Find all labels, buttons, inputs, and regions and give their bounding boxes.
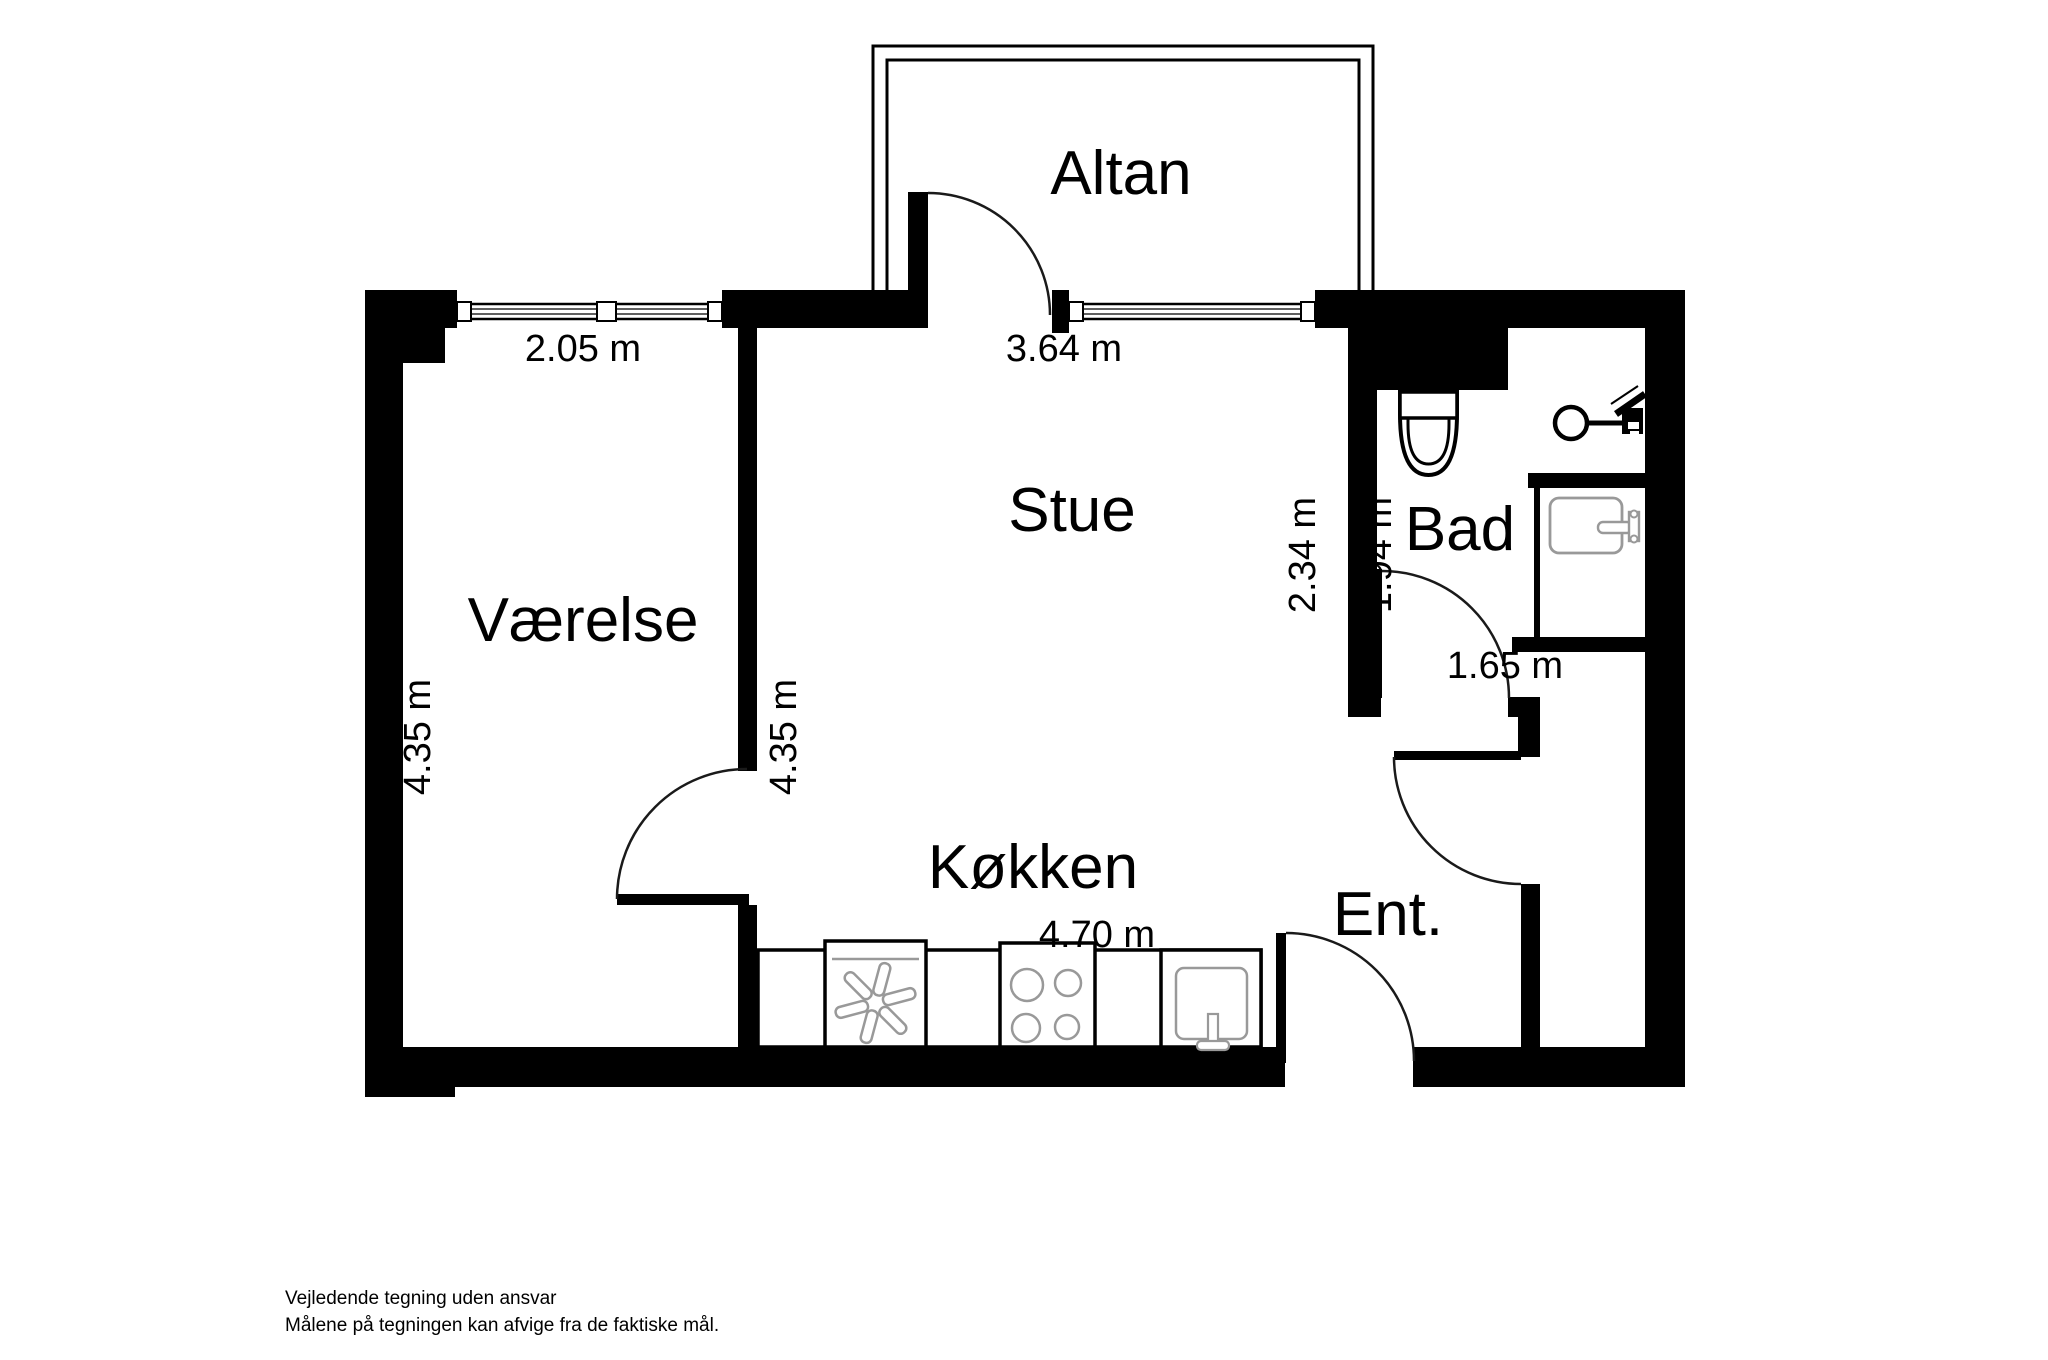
window-vaerelse-cap-left xyxy=(457,302,471,321)
wall-bad-bottom-stub-left xyxy=(1348,697,1381,717)
room-label-altan: Altan xyxy=(1050,139,1191,208)
measurement-stue-right-depth: 2.34 m xyxy=(1282,497,1324,613)
window-vaerelse xyxy=(457,290,722,328)
measurement-vaerelse-width: 2.05 m xyxy=(525,328,641,370)
window-vaerelse-mullion xyxy=(597,302,616,321)
toilet-icon xyxy=(1400,392,1457,475)
door-vaerelse-leaf xyxy=(617,894,749,905)
door-entrance-arc xyxy=(1286,933,1414,1061)
kitchen-sink-faucet-base xyxy=(1197,1041,1229,1050)
door-entrance-leaf xyxy=(1276,933,1286,1063)
floorplan-page: Altan Værelse Stue Køkken Bad Ent. 2.05 … xyxy=(0,0,2048,1360)
room-label-koekken: Køkken xyxy=(928,833,1138,902)
floorplan-drawing: Altan Værelse Stue Køkken Bad Ent. 2.05 … xyxy=(0,0,2048,1360)
washbasin-icon xyxy=(1550,498,1639,553)
room-label-stue: Stue xyxy=(1008,476,1136,545)
corner-pillar-top-left xyxy=(365,290,445,363)
washbasin-faucet-knob xyxy=(1631,511,1638,518)
wall-top-mid-segment xyxy=(722,290,908,328)
wall-bottom-left-segment xyxy=(365,1047,1285,1087)
disclaimer-line-1: Vejledende tegning uden ansvar xyxy=(285,1288,557,1309)
wall-ent-closet xyxy=(1521,884,1540,1060)
corner-pillar-bottom-left xyxy=(365,1047,455,1097)
wall-shower-sink-divider xyxy=(1528,473,1645,488)
measurement-bad-width: 1.65 m xyxy=(1447,645,1563,687)
wall-right xyxy=(1645,290,1685,1087)
wall-vaerelse-divider-upper xyxy=(738,328,757,771)
disclaimer-line-2: Målene på tegningen kan afvige fra de fa… xyxy=(285,1315,719,1336)
kitchen-sink-icon xyxy=(1161,950,1261,1050)
measurement-bad-depth: 1.94 m xyxy=(1358,497,1400,613)
window-vaerelse-cap-right xyxy=(708,302,722,321)
shower-icon xyxy=(1555,386,1645,439)
window-stue-cap-left xyxy=(1069,302,1083,321)
door-balcony xyxy=(908,192,1050,328)
shower-mixer-notch-2 xyxy=(1630,431,1639,436)
room-label-vaerelse: Værelse xyxy=(468,586,699,655)
door-balcony-arc xyxy=(928,193,1050,315)
wall-bad-bottom-stub-right xyxy=(1508,697,1540,717)
measurement-vaerelse-depth: 4.35 m xyxy=(397,679,439,795)
window-stue xyxy=(1069,290,1315,328)
extractor-fan-icon xyxy=(825,941,926,1047)
window-stue-cap-right xyxy=(1301,302,1315,321)
wall-bad-top-block xyxy=(1348,328,1508,390)
door-vaerelse-arc xyxy=(617,769,747,899)
wall-sink-niche-edge xyxy=(1534,488,1540,637)
room-label-bad: Bad xyxy=(1405,495,1515,564)
wall-top-right-segment xyxy=(1315,290,1685,328)
wall-bottom-right-segment xyxy=(1413,1047,1685,1087)
kitchen-counter xyxy=(758,941,1261,1050)
wall-vaerelse-divider-lower xyxy=(738,905,757,1047)
door-balcony-leaf xyxy=(908,192,928,328)
door-ent-closet xyxy=(1394,751,1521,884)
door-ent-closet-leaf xyxy=(1394,751,1521,760)
toilet-tank xyxy=(1400,392,1457,418)
door-vaerelse xyxy=(617,769,749,905)
measurement-stue-depth: 4.35 m xyxy=(763,679,805,795)
washbasin-faucet-knob-2 xyxy=(1631,536,1638,543)
door-ent-closet-arc xyxy=(1394,757,1521,884)
cooktop-icon xyxy=(1000,943,1095,1047)
shower-mixer-notch xyxy=(1628,422,1639,429)
room-label-ent: Ent. xyxy=(1333,880,1443,949)
wall-ent-closet-stub xyxy=(1518,717,1540,757)
door-entrance xyxy=(1276,933,1414,1063)
shower-head xyxy=(1555,407,1587,439)
balcony-door-right-jamb xyxy=(1052,290,1069,333)
washbasin-faucet-arm xyxy=(1598,522,1632,533)
measurement-stue-width: 3.64 m xyxy=(1006,328,1122,370)
measurement-koekken-width: 4.70 m xyxy=(1039,914,1155,956)
